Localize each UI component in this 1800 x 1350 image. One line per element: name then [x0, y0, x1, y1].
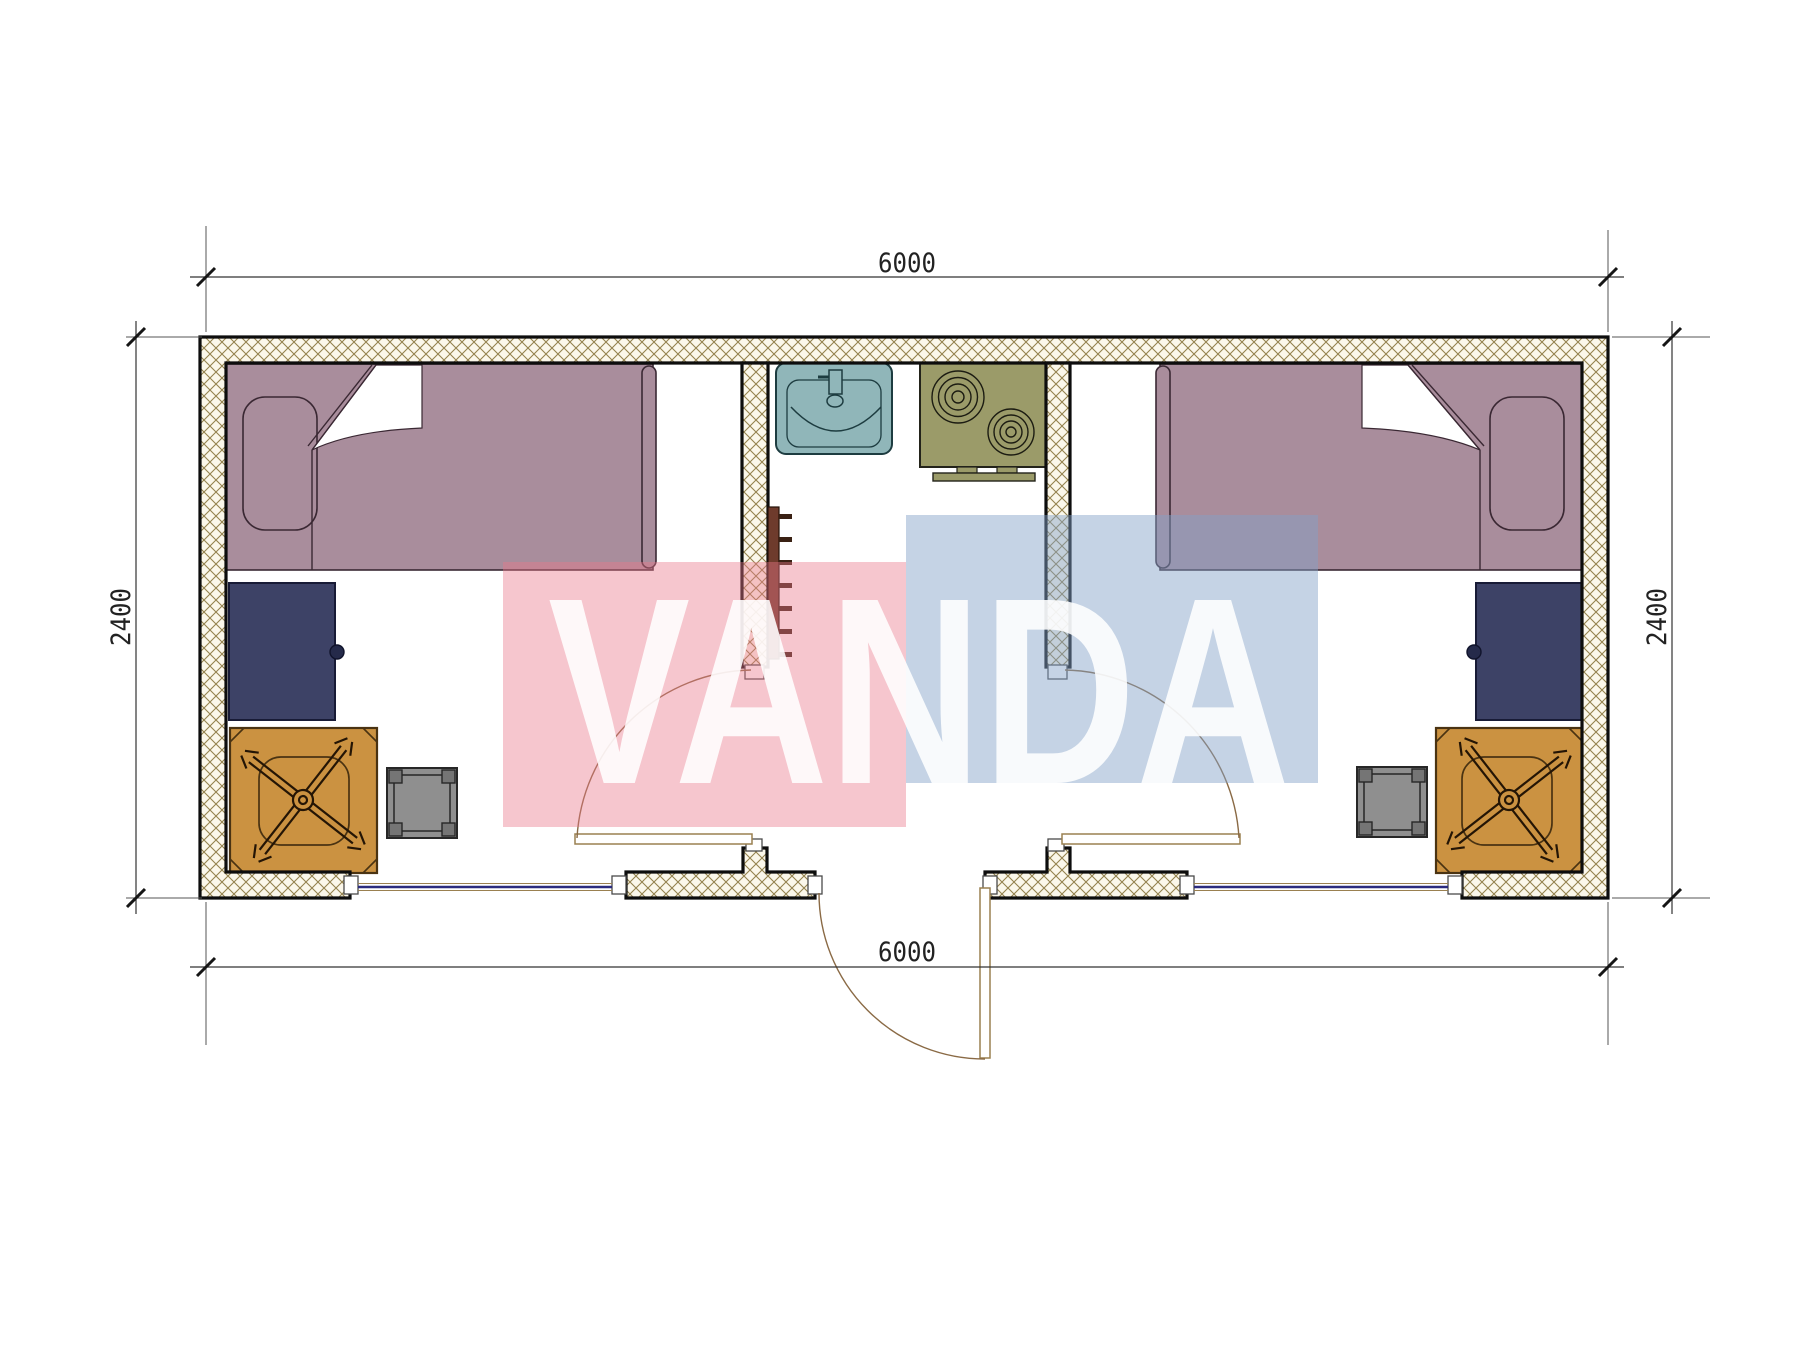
dimension-top: 6000 [190, 226, 1624, 332]
bed-left-pillow [243, 397, 317, 530]
bed-left-footboard [642, 366, 656, 568]
floor-plan-canvas: 6000 6000 2400 2400 VANDA [0, 0, 1800, 1350]
stool-right [1357, 767, 1427, 837]
dimension-bottom: 6000 [190, 902, 1624, 1045]
desk-left [229, 583, 344, 720]
stool-left [387, 768, 457, 838]
window-left [358, 884, 612, 891]
desk-left-knob [330, 645, 344, 659]
bed-right-pillow [1490, 397, 1564, 530]
bottom-wall-segment-right [985, 848, 1187, 898]
bottom-wall-segment-left [626, 848, 815, 898]
stove-handle [933, 473, 1035, 481]
floor-plan-page: 6000 6000 2400 2400 VANDA [0, 0, 1800, 1350]
stove [920, 362, 1047, 481]
watermark: VANDA [503, 515, 1318, 840]
dimension-left: 2400 [106, 321, 202, 914]
desk-right [1467, 583, 1582, 720]
sink-faucet [829, 370, 842, 394]
door-entrance [819, 888, 990, 1059]
window-right [1194, 884, 1448, 891]
watermark-text: VANDA [548, 543, 1290, 840]
bed-left [226, 364, 656, 570]
desk-right-knob [1467, 645, 1481, 659]
dimension-top-label: 6000 [878, 248, 936, 279]
dimension-right-label: 2400 [1642, 588, 1673, 646]
sink [776, 363, 892, 454]
dimension-left-label: 2400 [106, 588, 137, 646]
dimension-bottom-label: 6000 [878, 937, 936, 968]
dimension-right: 2400 [1612, 321, 1710, 914]
